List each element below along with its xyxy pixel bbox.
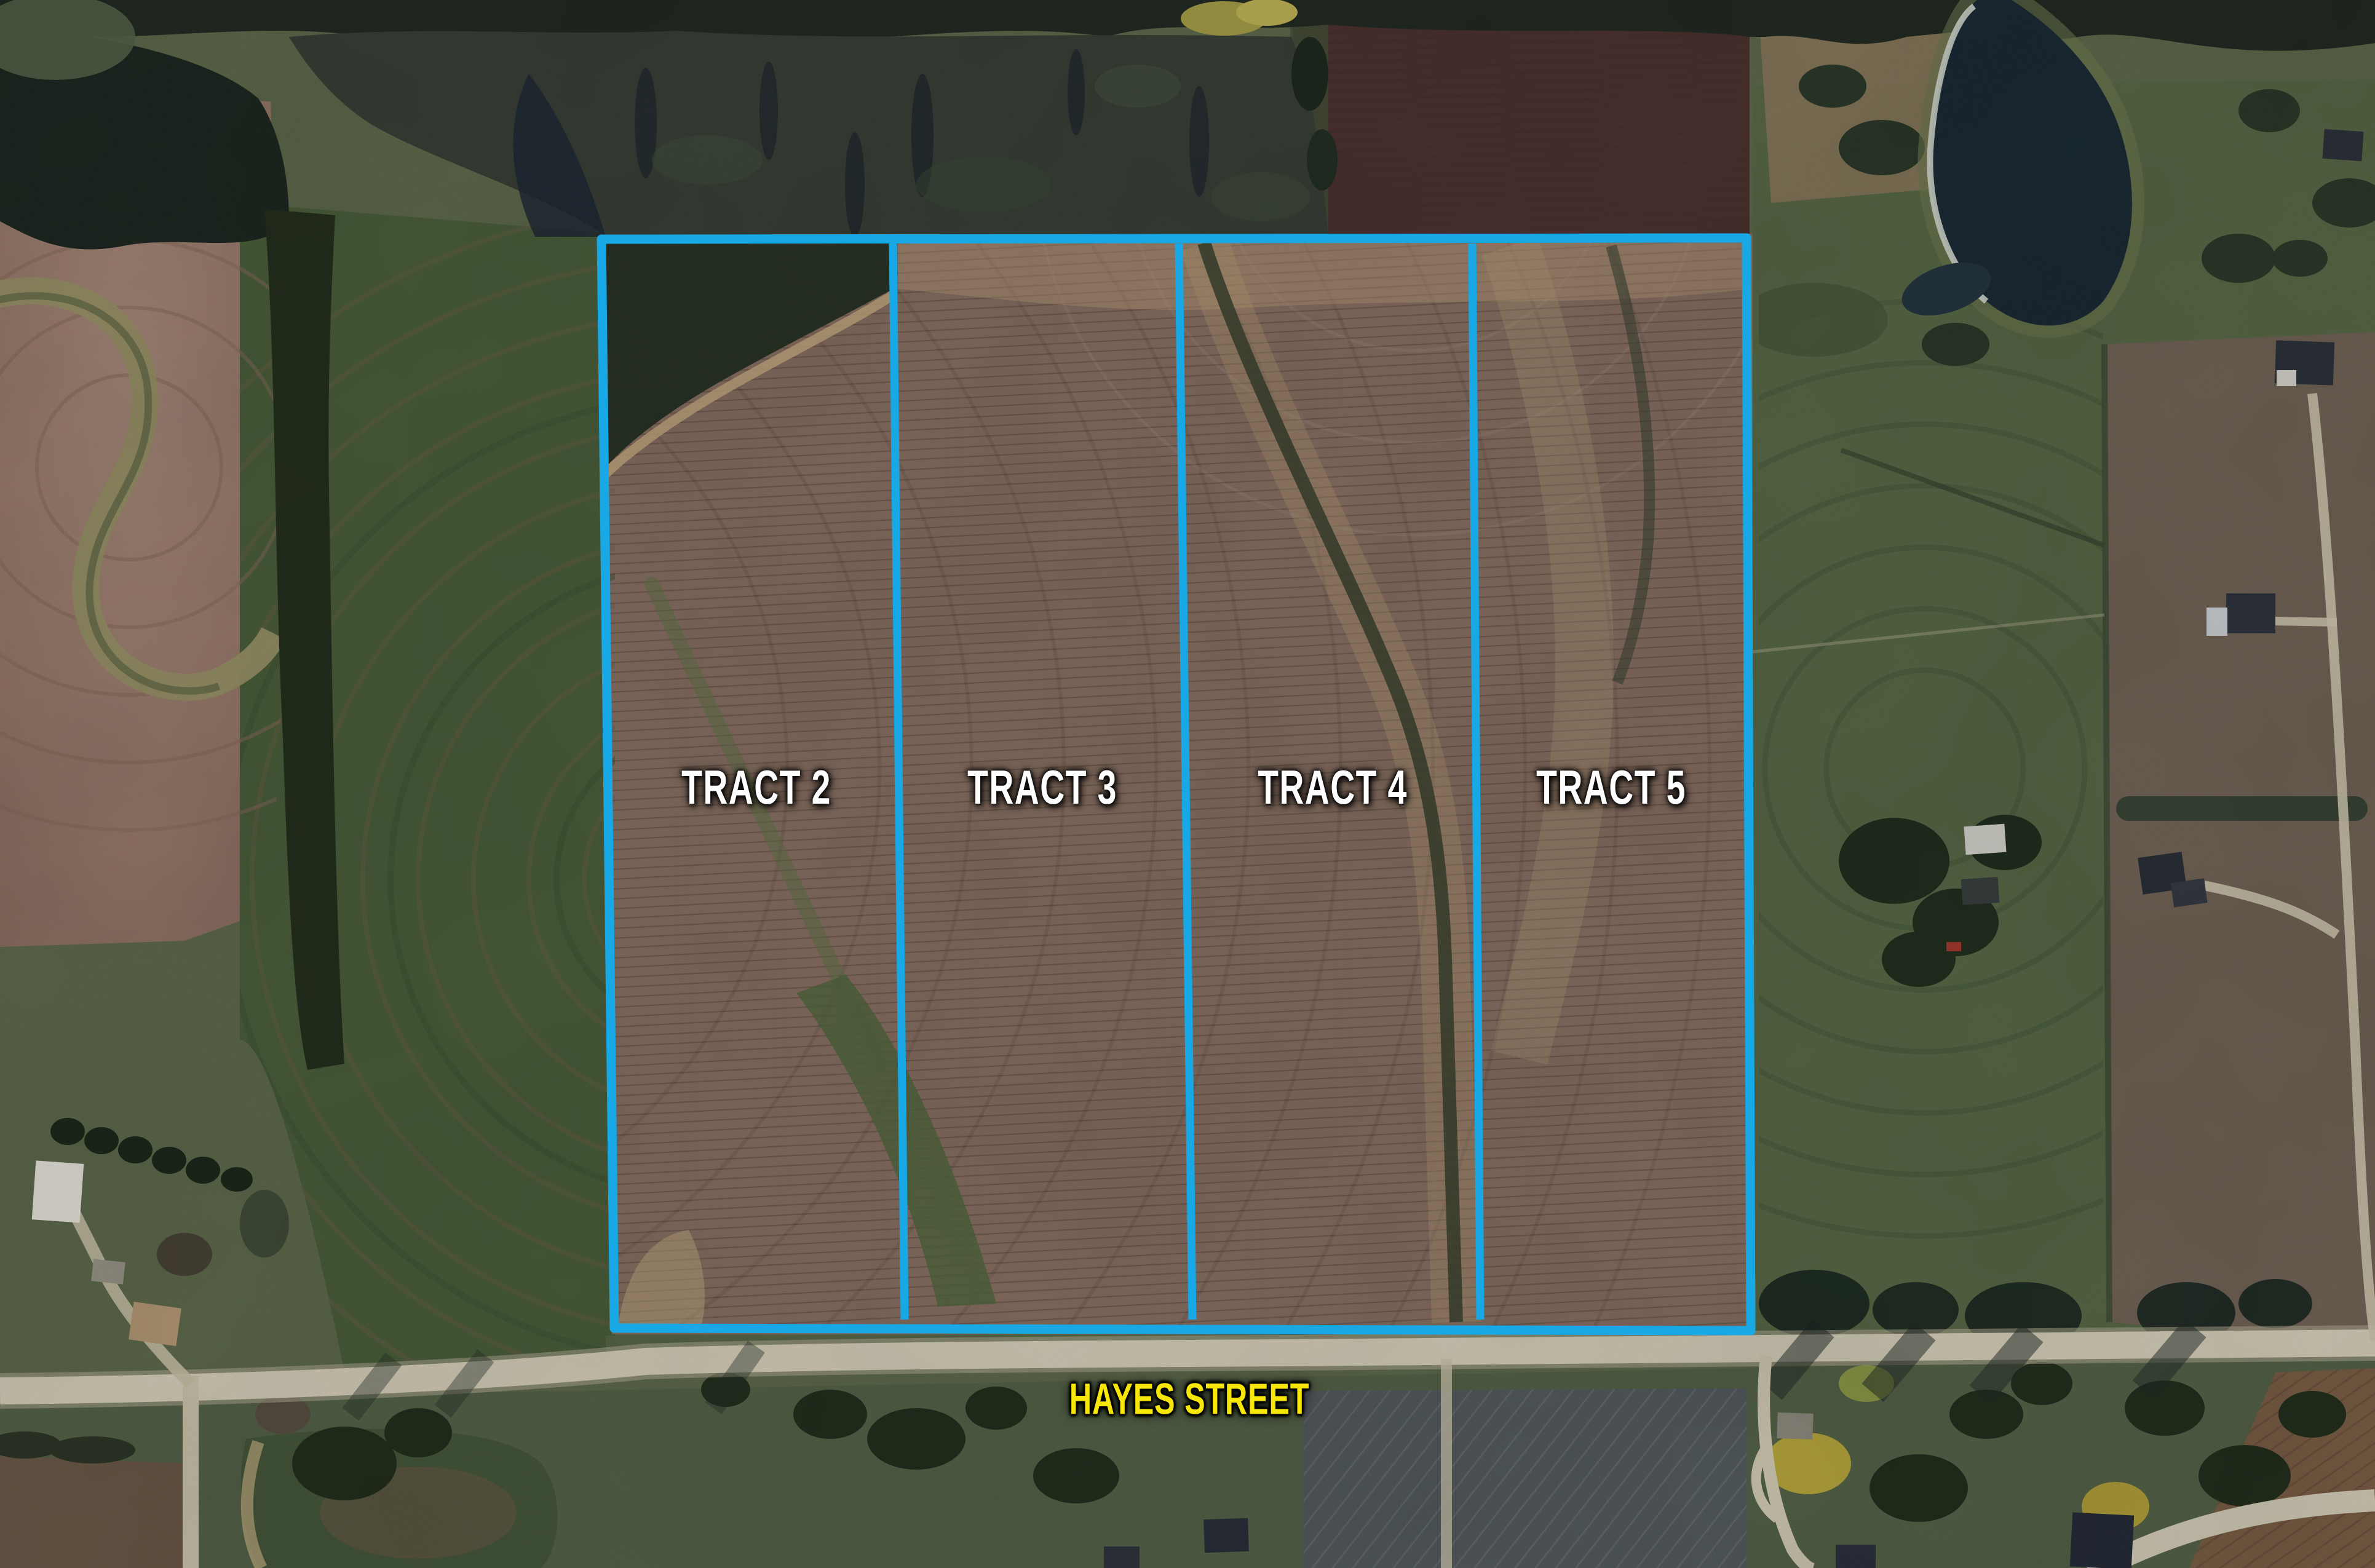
tract-4-label: TRACT 4 <box>1258 763 1408 811</box>
tract-divider-2 <box>1179 244 1192 1320</box>
tract-divider-3 <box>1472 244 1480 1320</box>
tract-2-label: TRACT 2 <box>681 763 831 811</box>
tract-divider-1 <box>893 244 905 1320</box>
street-label: HAYES STREET <box>1069 1378 1309 1422</box>
tract-5-label: TRACT 5 <box>1536 763 1686 811</box>
tract-boundary-layer <box>0 0 2375 1568</box>
tract-3-label: TRACT 3 <box>967 763 1117 811</box>
aerial-tract-map: TRACT 2 TRACT 3 TRACT 4 TRACT 5 HAYES ST… <box>0 0 2375 1568</box>
